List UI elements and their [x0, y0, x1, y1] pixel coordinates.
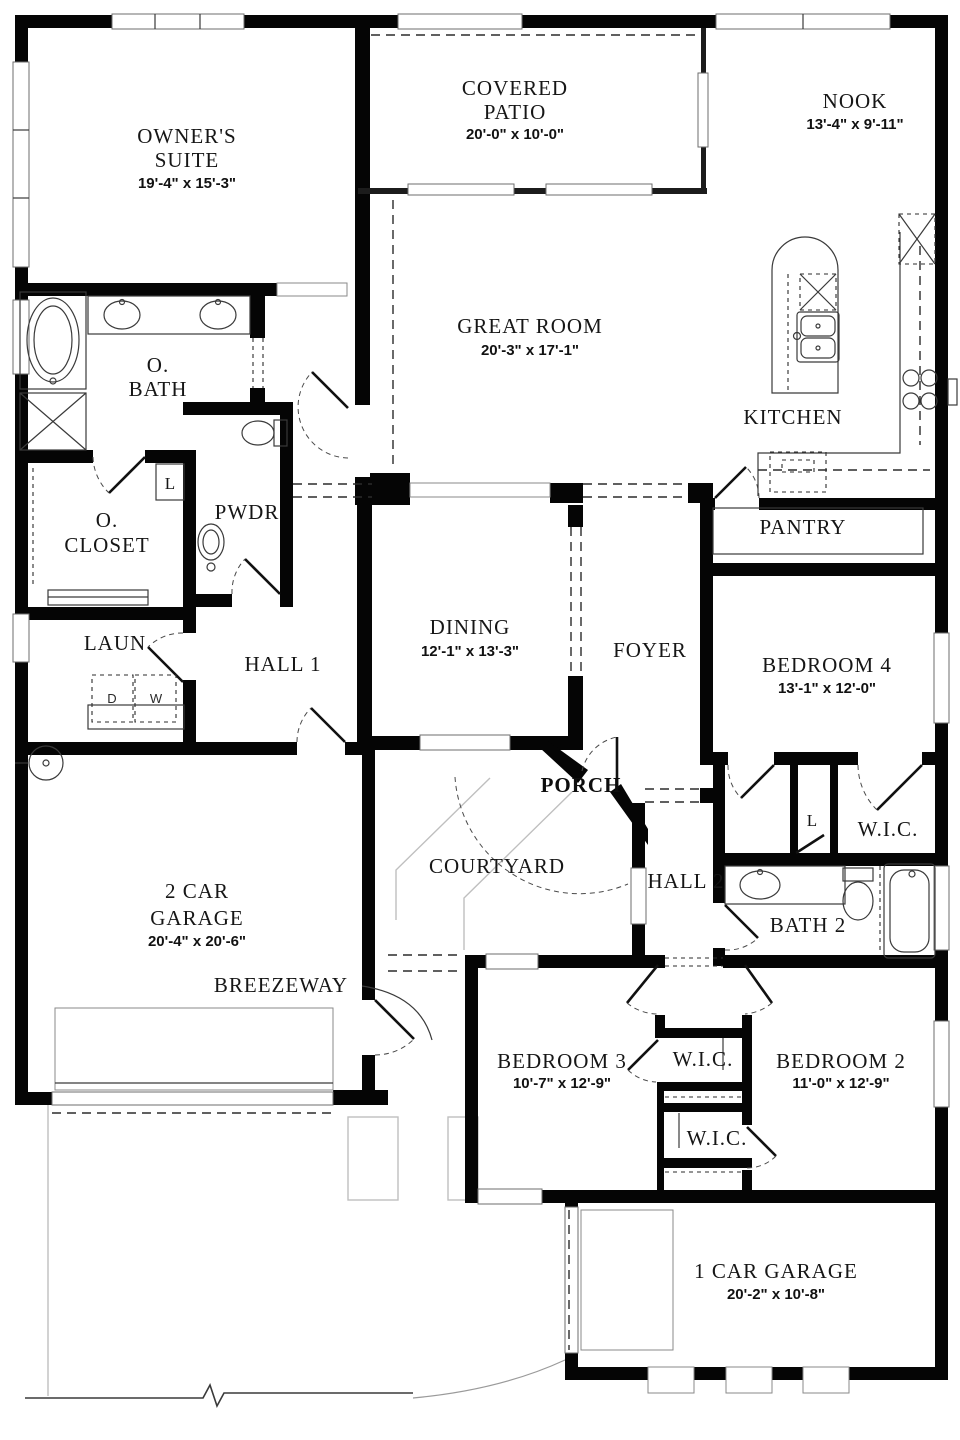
room-dims-great-room: 20'-3" x 17'-1" — [481, 342, 579, 359]
room-dims-nook: 13'-4" x 9'-11" — [806, 116, 903, 133]
room-label-wic-center: W.I.C. — [673, 1047, 734, 1071]
room-label-courtyard: COURTYARD — [429, 854, 565, 878]
refrigerator — [899, 214, 935, 264]
bath2-toilet — [843, 868, 873, 920]
floor-plan-svg: OWNER'S SUITE 19'-4" x 15'-3" COVERED PA… — [0, 0, 960, 1440]
room-label-owners-bath-2: BATH — [129, 377, 188, 401]
room-label-owners-bath: O. — [147, 353, 169, 377]
room-dims-garage2: 20'-4" x 20'-6" — [148, 933, 246, 950]
room-label-covered-patio-2: PATIO — [484, 100, 547, 124]
kitchen-counter — [758, 232, 930, 496]
label-dryer: D — [107, 691, 116, 706]
garage2-door-panel — [55, 1008, 333, 1090]
room-label-pantry: PANTRY — [760, 515, 847, 539]
room-dims-bedroom2: 11'-0" x 12'-9" — [792, 1075, 889, 1092]
room-label-garage2: 2 CAR — [165, 879, 229, 903]
label-linen-closet: L — [165, 474, 175, 493]
label-washer: W — [150, 691, 163, 706]
room-label-bath2: BATH 2 — [770, 913, 847, 937]
room-label-nook: NOOK — [823, 89, 888, 113]
room-label-dining: DINING — [430, 615, 511, 639]
room-label-owners-closet-2: CLOSET — [64, 533, 149, 557]
room-label-garage1: 1 CAR GARAGE — [694, 1259, 858, 1283]
room-dims-covered-patio: 20'-0" x 10'-0" — [466, 126, 564, 143]
room-label-wic-bedroom4: W.I.C. — [858, 817, 919, 841]
room-dims-owners-suite: 19'-4" x 15'-3" — [138, 175, 236, 192]
room-label-bedroom2: BEDROOM 2 — [776, 1049, 906, 1073]
floor-plan: OWNER'S SUITE 19'-4" x 15'-3" COVERED PA… — [0, 0, 960, 1440]
room-label-covered-patio: COVERED — [462, 76, 568, 100]
room-label-owners-suite: OWNER'S — [137, 124, 236, 148]
room-label-kitchen: KITCHEN — [743, 405, 842, 429]
washer-dryer — [88, 675, 184, 729]
room-label-laundry: LAUN — [84, 631, 146, 655]
owners-bath-vanity — [88, 296, 250, 334]
room-label-porch: PORCH — [541, 773, 622, 797]
room-label-powder: PWDR — [215, 500, 280, 524]
room-label-great-room: GREAT ROOM — [457, 314, 603, 338]
bath2-tub — [880, 864, 935, 958]
room-label-wic-lower: W.I.C. — [687, 1126, 748, 1150]
owners-bath-tub — [20, 292, 86, 389]
room-label-garage2-2: GARAGE — [150, 906, 244, 930]
room-dims-bedroom3: 10'-7" x 12'-9" — [513, 1075, 611, 1092]
room-label-owners-closet: O. — [96, 508, 118, 532]
room-dims-garage1: 20'-2" x 10'-8" — [727, 1286, 825, 1303]
wall-oven — [770, 452, 826, 492]
label-linen-hall2: L — [807, 811, 817, 830]
garage1-door-panel — [581, 1210, 673, 1350]
room-label-hall1: HALL 1 — [245, 652, 322, 676]
room-label-foyer: FOYER — [613, 638, 687, 662]
owners-bath-shower — [20, 393, 86, 450]
room-label-owners-suite-2: SUITE — [155, 148, 220, 172]
room-label-bedroom3: BEDROOM 3 — [497, 1049, 627, 1073]
closet-shelf — [48, 590, 148, 605]
kitchen-island — [772, 237, 839, 393]
room-label-hall2: HALL 2 — [648, 869, 725, 893]
powder-sink — [198, 524, 224, 571]
room-dims-dining: 12'-1" x 13'-3" — [421, 643, 519, 660]
room-dims-bedroom4: 13'-1" x 12'-0" — [778, 680, 876, 697]
room-label-breezeway: BREEZEWAY — [214, 973, 348, 997]
cooktop — [903, 370, 957, 409]
bath2-vanity — [725, 866, 845, 904]
room-label-bedroom4: BEDROOM 4 — [762, 653, 892, 677]
dashed-lines — [33, 35, 745, 1350]
